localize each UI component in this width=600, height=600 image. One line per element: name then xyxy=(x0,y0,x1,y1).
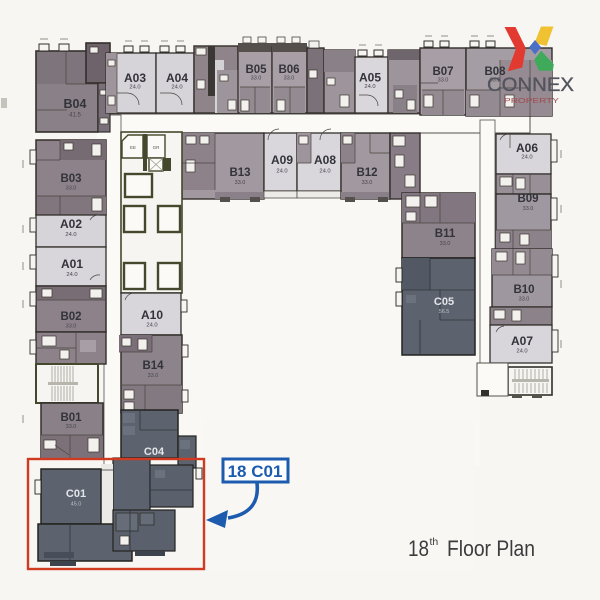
svg-text:A10: A10 xyxy=(141,308,163,322)
svg-text:B10: B10 xyxy=(513,284,534,296)
svg-text:24.0: 24.0 xyxy=(66,272,77,278)
svg-text:33.0: 33.0 xyxy=(235,180,246,186)
svg-text:A03: A03 xyxy=(124,71,146,85)
svg-text:56.5: 56.5 xyxy=(439,309,450,315)
svg-text:GR: GR xyxy=(153,145,161,150)
svg-text:B01: B01 xyxy=(60,412,82,424)
svg-text:33.0: 33.0 xyxy=(362,180,373,186)
svg-text:24.0: 24.0 xyxy=(65,232,76,238)
svg-text:A09: A09 xyxy=(271,153,293,167)
svg-text:33.0: 33.0 xyxy=(148,373,159,379)
svg-text:Floor Plan: Floor Plan xyxy=(447,536,535,561)
svg-text:EE: EE xyxy=(130,145,136,150)
svg-text:A01: A01 xyxy=(61,257,83,271)
svg-text:PROPERTY: PROPERTY xyxy=(504,96,559,105)
svg-text:B06: B06 xyxy=(278,64,299,76)
svg-text:B02: B02 xyxy=(60,311,81,323)
svg-text:B09: B09 xyxy=(517,193,538,205)
svg-text:33.0: 33.0 xyxy=(523,206,534,212)
svg-text:24.0: 24.0 xyxy=(319,169,330,175)
svg-text:33.0: 33.0 xyxy=(66,186,77,192)
svg-text:33.0: 33.0 xyxy=(438,78,449,84)
svg-text:B12: B12 xyxy=(356,167,377,179)
svg-text:24.0: 24.0 xyxy=(364,84,375,90)
svg-text:C01: C01 xyxy=(66,488,86,500)
svg-text:B13: B13 xyxy=(229,167,250,179)
svg-text:18: 18 xyxy=(408,536,429,561)
svg-text:A02: A02 xyxy=(60,217,82,231)
svg-text:B05: B05 xyxy=(245,64,267,76)
svg-text:A06: A06 xyxy=(516,141,538,155)
svg-text:24.0: 24.0 xyxy=(146,323,157,329)
svg-text:A04: A04 xyxy=(166,71,188,85)
svg-text:18 C01: 18 C01 xyxy=(228,462,283,481)
svg-text:41.5: 41.5 xyxy=(69,113,81,119)
svg-text:A08: A08 xyxy=(314,153,336,167)
svg-text:CONNEX: CONNEX xyxy=(487,74,574,96)
svg-text:24.0: 24.0 xyxy=(276,169,287,175)
svg-text:33.0: 33.0 xyxy=(251,76,262,82)
svg-text:33.0: 33.0 xyxy=(284,76,295,82)
svg-text:B11: B11 xyxy=(435,228,456,240)
svg-text:B04: B04 xyxy=(64,97,87,111)
svg-text:24.0: 24.0 xyxy=(521,155,532,161)
svg-text:33.0: 33.0 xyxy=(66,324,77,330)
svg-text:C05: C05 xyxy=(434,296,454,308)
svg-text:45.0: 45.0 xyxy=(71,502,82,508)
svg-text:33.0: 33.0 xyxy=(66,424,77,430)
svg-text:C04: C04 xyxy=(144,446,165,458)
svg-text:B07: B07 xyxy=(432,66,453,78)
svg-text:A05: A05 xyxy=(359,70,381,84)
svg-text:th: th xyxy=(430,536,439,548)
svg-text:B03: B03 xyxy=(60,173,81,185)
svg-text:24.0: 24.0 xyxy=(129,85,140,91)
svg-text:B14: B14 xyxy=(142,360,164,372)
svg-text:24.0: 24.0 xyxy=(516,349,527,355)
svg-text:33.0: 33.0 xyxy=(519,297,530,303)
svg-text:24.0: 24.0 xyxy=(171,85,182,91)
svg-text:A07: A07 xyxy=(511,334,533,348)
svg-text:33.0: 33.0 xyxy=(440,241,451,247)
